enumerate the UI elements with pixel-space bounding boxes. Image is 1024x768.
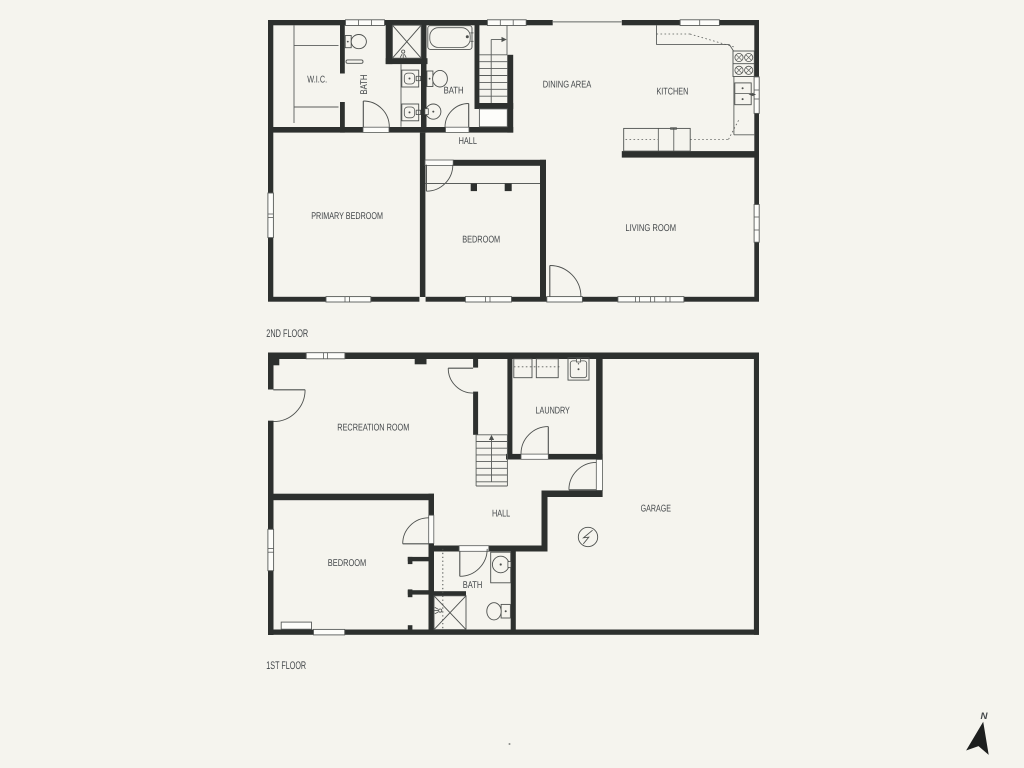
svg-text:LIVING ROOM: LIVING ROOM bbox=[625, 223, 676, 234]
svg-text:GARAGE: GARAGE bbox=[641, 503, 672, 514]
svg-text:PRIMARY BEDROOM: PRIMARY BEDROOM bbox=[311, 211, 383, 222]
svg-text:1ST FLOOR: 1ST FLOOR bbox=[266, 660, 306, 672]
svg-text:2ND FLOOR: 2ND FLOOR bbox=[266, 328, 308, 340]
svg-text:RECREATION ROOM: RECREATION ROOM bbox=[337, 423, 409, 434]
svg-text:BATH: BATH bbox=[444, 85, 464, 96]
svg-text:BATH: BATH bbox=[359, 75, 370, 95]
svg-text:DINING AREA: DINING AREA bbox=[543, 80, 592, 91]
svg-text:W.I.C.: W.I.C. bbox=[307, 74, 327, 85]
svg-text:BEDROOM: BEDROOM bbox=[328, 558, 367, 569]
svg-text:HALL: HALL bbox=[459, 136, 478, 147]
svg-text:LAUNDRY: LAUNDRY bbox=[536, 405, 571, 416]
svg-text:N: N bbox=[981, 711, 989, 722]
svg-text:BATH: BATH bbox=[463, 580, 483, 591]
svg-text:HALL: HALL bbox=[492, 509, 511, 520]
svg-text:BEDROOM: BEDROOM bbox=[462, 235, 500, 246]
svg-text:KITCHEN: KITCHEN bbox=[656, 86, 688, 97]
